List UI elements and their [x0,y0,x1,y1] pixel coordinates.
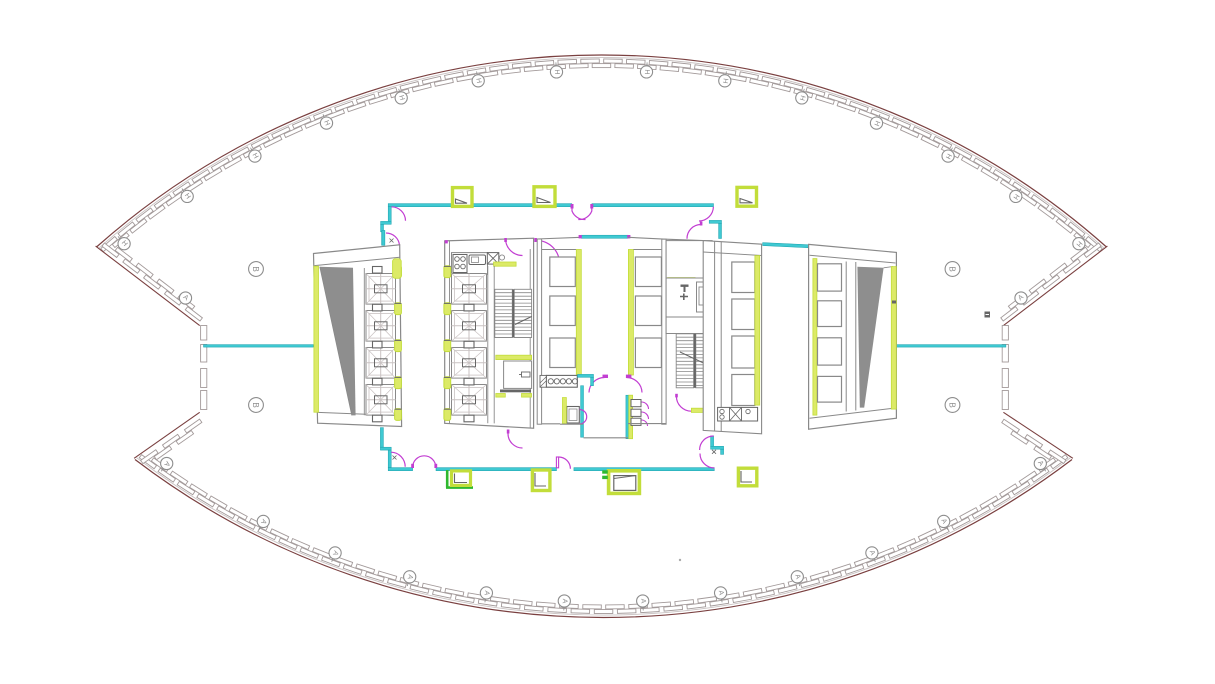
svg-text:A: A [639,598,646,603]
svg-text:H: H [553,69,560,74]
svg-text:A: A [561,598,568,603]
svg-text:B: B [251,402,261,408]
svg-text:B: B [251,266,261,272]
svg-text:B: B [948,402,958,408]
svg-text:H: H [643,69,650,74]
svg-text:B: B [948,266,958,272]
